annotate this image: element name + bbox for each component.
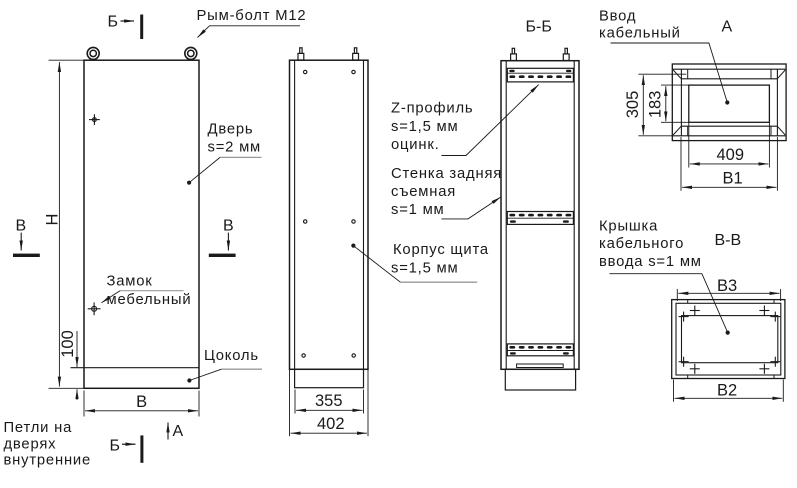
svg-text:Петли на: Петли на [4,420,73,436]
svg-text:355: 355 [315,392,343,410]
svg-text:Цоколь: Цоколь [204,348,259,364]
svg-text:Б: Б [110,438,121,455]
svg-text:Корпус щита: Корпус щита [393,242,489,258]
svg-text:В2: В2 [717,381,737,399]
svg-text:В: В [16,218,27,235]
svg-text:В: В [136,393,147,411]
svg-text:дверях: дверях [4,436,57,452]
svg-text:Z-профиль: Z-профиль [391,101,473,117]
svg-text:кабельного: кабельного [599,236,684,252]
svg-text:мебельный: мебельный [107,292,192,308]
svg-text:Дверь: Дверь [208,121,254,137]
svg-text:Ввод: Ввод [599,9,636,25]
svg-text:В: В [223,218,234,235]
svg-text:Б-Б: Б-Б [526,19,552,36]
svg-text:ввода s=1 мм: ввода s=1 мм [599,254,702,270]
svg-text:съемная: съемная [391,184,456,200]
svg-text:оцинк.: оцинк. [391,137,440,153]
svg-text:409: 409 [717,146,745,164]
svg-text:s=2 мм: s=2 мм [208,140,262,156]
svg-text:Замок: Замок [107,274,153,290]
svg-text:Крышка: Крышка [599,219,658,235]
svg-text:А: А [173,423,184,440]
svg-text:s=1,5 мм: s=1,5 мм [391,261,458,277]
svg-text:100: 100 [59,330,77,358]
svg-text:Стенка задняя: Стенка задняя [391,166,502,182]
svg-text:Н: Н [43,214,61,226]
svg-text:Б: Б [108,14,119,31]
svg-text:В-В: В-В [715,232,742,249]
svg-text:А: А [722,19,733,36]
svg-text:внутренние: внутренние [4,453,92,469]
svg-text:s=1 мм: s=1 мм [391,202,445,218]
svg-text:В3: В3 [717,277,737,295]
svg-text:183: 183 [646,91,664,119]
svg-text:402: 402 [317,415,345,433]
svg-text:305: 305 [624,91,642,119]
svg-text:кабельный: кабельный [599,26,681,42]
svg-text:Рым-болт М12: Рым-болт М12 [197,8,307,24]
svg-text:s=1,5 мм: s=1,5 мм [391,119,458,135]
svg-text:В1: В1 [723,169,743,187]
